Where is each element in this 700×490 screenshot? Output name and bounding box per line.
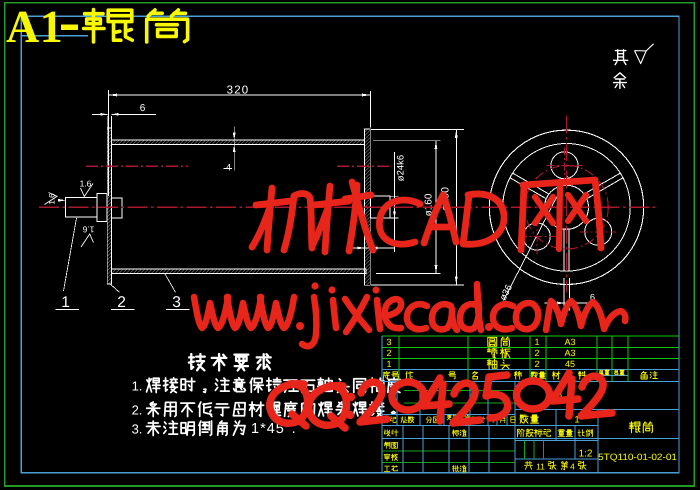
svg-text:1.6: 1.6 <box>48 193 57 205</box>
svg-text:A1: A1 <box>6 1 63 52</box>
svg-text:1.: 1. <box>132 379 143 394</box>
svg-text:2: 2 <box>386 348 391 358</box>
svg-text:1: 1 <box>534 337 539 347</box>
svg-text:1.6: 1.6 <box>80 179 92 189</box>
svg-text:2: 2 <box>534 359 539 369</box>
svg-text:3: 3 <box>386 337 391 347</box>
svg-text:4: 4 <box>226 163 231 174</box>
svg-text:1: 1 <box>61 294 70 311</box>
svg-text:1: 1 <box>386 359 391 369</box>
svg-text:ø24k6: ø24k6 <box>396 155 407 181</box>
svg-text:A3: A3 <box>564 337 575 347</box>
svg-text:2.: 2. <box>132 403 143 418</box>
svg-text:11: 11 <box>536 461 545 471</box>
svg-text:A3: A3 <box>564 348 575 358</box>
svg-text:4: 4 <box>570 461 575 471</box>
svg-text:45: 45 <box>565 359 575 369</box>
svg-text:5TQ110-01-02-01: 5TQ110-01-02-01 <box>598 452 677 462</box>
svg-text:320: 320 <box>227 85 250 97</box>
svg-text:3.: 3. <box>132 422 143 437</box>
svg-text:3: 3 <box>172 294 181 311</box>
svg-text:6: 6 <box>140 103 146 114</box>
svg-text:1.6: 1.6 <box>82 225 94 235</box>
svg-text:1:2: 1:2 <box>579 449 593 460</box>
svg-text:2: 2 <box>117 294 126 311</box>
svg-text:2: 2 <box>534 348 539 358</box>
